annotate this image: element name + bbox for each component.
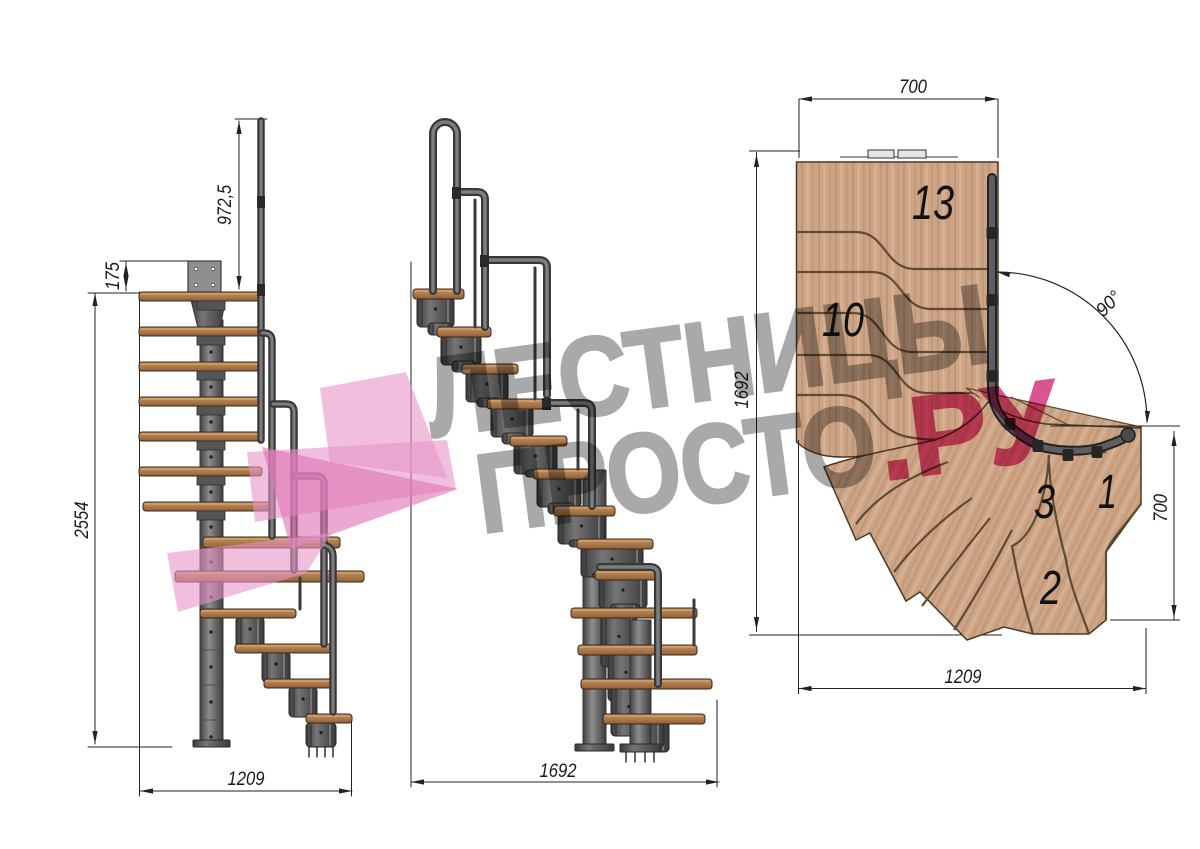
svg-text:.РУ: .РУ — [870, 356, 1066, 504]
svg-text:1209: 1209 — [228, 769, 265, 790]
svg-text:1: 1 — [1098, 466, 1117, 519]
svg-text:972,5: 972,5 — [215, 185, 236, 225]
svg-text:2554: 2554 — [72, 502, 93, 540]
svg-text:700: 700 — [1151, 494, 1172, 522]
svg-text:700: 700 — [899, 77, 927, 98]
svg-text:13: 13 — [912, 177, 954, 230]
svg-text:1209: 1209 — [945, 667, 982, 688]
svg-text:1692: 1692 — [540, 761, 577, 782]
svg-text:175: 175 — [103, 262, 124, 290]
svg-text:2: 2 — [1039, 562, 1061, 615]
